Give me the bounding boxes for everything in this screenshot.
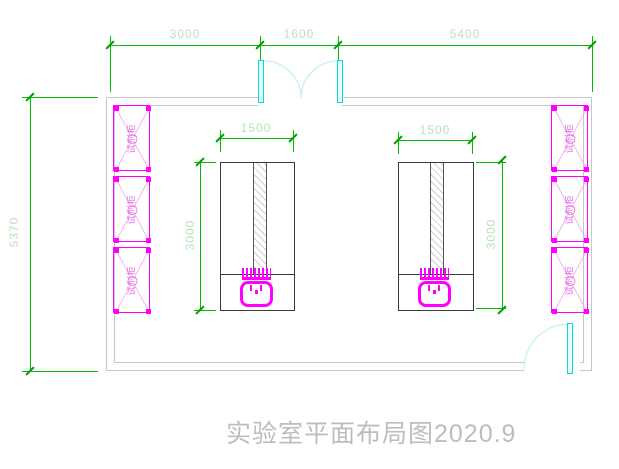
drawing-title: 实验室平面布局图2020.9 [226,414,516,450]
door-swing-arcs [0,0,619,469]
door-leaf-bottom-right [567,323,573,374]
door-leaf-top-left [258,60,264,103]
floor-plan-canvas: 3000 1600 5400 5370 1500 3000 [0,0,619,469]
door-leaf-top-right [337,60,343,103]
